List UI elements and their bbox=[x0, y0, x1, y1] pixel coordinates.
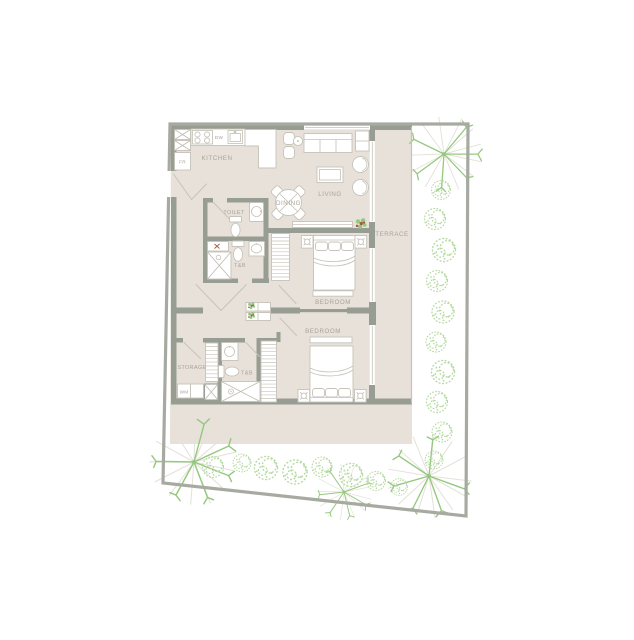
room-label-bath-upper: T&B bbox=[234, 263, 246, 269]
room-label-kitchen: KITCHEN bbox=[201, 155, 232, 162]
room-label-fridge: FR bbox=[179, 160, 186, 165]
bedroom-2 bbox=[261, 337, 366, 402]
floor-plan-page: KITCHEN DW FR LIVING DINING TOILET T&B T… bbox=[0, 0, 634, 640]
room-label-dishwasher: DW bbox=[215, 135, 224, 140]
bed bbox=[314, 236, 356, 291]
utility-shaft bbox=[205, 384, 219, 400]
laundry-counter bbox=[208, 242, 229, 252]
room-label-bedroom-1: BEDROOM bbox=[315, 299, 351, 306]
washbasin-icon bbox=[222, 343, 239, 361]
washbasin-icon bbox=[249, 242, 265, 257]
shower bbox=[222, 382, 261, 402]
wc-icon bbox=[230, 217, 242, 237]
nightstand bbox=[298, 390, 310, 403]
armchair bbox=[353, 180, 369, 196]
room-label-terrace: TERRACE bbox=[375, 231, 408, 238]
wardrobe bbox=[272, 234, 290, 281]
room-label-bath-lower: T&B bbox=[241, 371, 253, 377]
room-label-washing-machine: WM bbox=[180, 390, 189, 395]
bed bbox=[310, 346, 353, 402]
sofa bbox=[304, 134, 352, 153]
wc-icon bbox=[232, 241, 244, 261]
shower bbox=[208, 252, 232, 279]
laundry-counter bbox=[191, 384, 204, 398]
tv-console bbox=[293, 222, 353, 228]
room-label-bedroom-2: BEDROOM bbox=[305, 328, 341, 335]
nightstand bbox=[355, 236, 367, 249]
coffee-table bbox=[317, 167, 343, 183]
wardrobe bbox=[261, 341, 277, 402]
nightstand bbox=[355, 390, 367, 403]
room-label-dining: DINING bbox=[276, 200, 301, 207]
stool bbox=[284, 133, 295, 145]
bed-bench bbox=[310, 337, 352, 343]
nightstand bbox=[301, 236, 313, 249]
stool bbox=[284, 147, 295, 159]
hall-consoles bbox=[246, 302, 271, 320]
room-label-toilet: TOILET bbox=[223, 210, 244, 216]
room-label-storage: STORAGE bbox=[177, 365, 206, 371]
room-label-living: LIVING bbox=[318, 191, 342, 198]
bed-bench bbox=[313, 291, 353, 296]
floor-plan-canvas: KITCHEN DW FR LIVING DINING TOILET T&B T… bbox=[0, 0, 634, 640]
wc-icon bbox=[219, 366, 239, 378]
armchair bbox=[353, 157, 369, 173]
shelf-unit bbox=[206, 343, 219, 382]
corner-cabinet bbox=[356, 131, 370, 151]
